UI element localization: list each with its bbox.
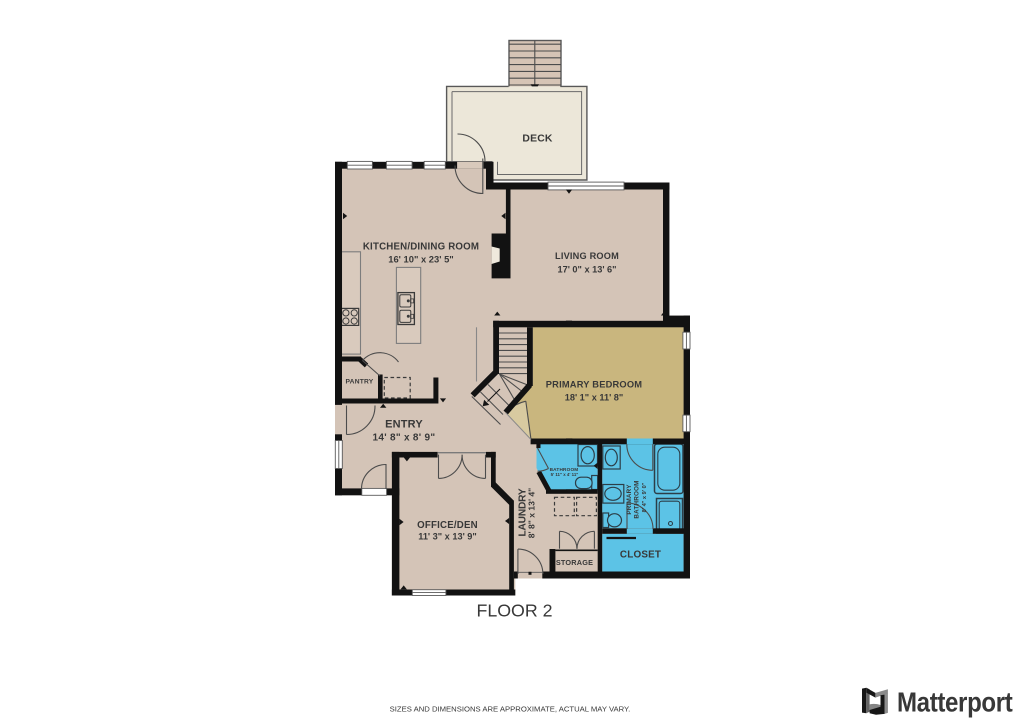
svg-text:16' 10" x 23' 5": 16' 10" x 23' 5" — [388, 254, 453, 265]
svg-text:CLOSET: CLOSET — [620, 550, 661, 561]
svg-text:LIVING ROOM: LIVING ROOM — [555, 251, 619, 261]
svg-text:PRIMARY BEDROOM: PRIMARY BEDROOM — [546, 380, 643, 390]
svg-text:14' 8" x 8' 9": 14' 8" x 8' 9" — [373, 433, 436, 444]
svg-text:SIZES AND DIMENSIONS ARE APPRO: SIZES AND DIMENSIONS ARE APPROXIMATE, AC… — [390, 705, 631, 714]
svg-text:PRIMARY: PRIMARY — [626, 484, 633, 515]
svg-text:KITCHEN/DINING ROOM: KITCHEN/DINING ROOM — [363, 242, 479, 253]
svg-text:FLOOR 2: FLOOR 2 — [476, 601, 552, 621]
svg-text:17' 0" x 13' 6": 17' 0" x 13' 6" — [557, 265, 616, 275]
svg-text:OFFICE/DEN: OFFICE/DEN — [417, 520, 478, 531]
svg-text:8' 8" x 13' 4": 8' 8" x 13' 4" — [527, 488, 537, 538]
svg-text:DECK: DECK — [522, 134, 553, 145]
svg-text:PANTRY: PANTRY — [346, 379, 374, 386]
svg-text:STORAGE: STORAGE — [556, 558, 593, 567]
svg-text:Matterport: Matterport — [897, 688, 1013, 718]
svg-text:5' 11" x 4' 11": 5' 11" x 4' 11" — [551, 472, 579, 477]
svg-text:ENTRY: ENTRY — [385, 419, 423, 431]
svg-text:BATHROOM: BATHROOM — [634, 480, 641, 518]
svg-text:8' 4" x 9' 0": 8' 4" x 9' 0" — [642, 482, 648, 512]
svg-text:11' 3" x 13' 9": 11' 3" x 13' 9" — [418, 532, 477, 542]
svg-text:18' 1" x 11' 8": 18' 1" x 11' 8" — [565, 393, 624, 403]
